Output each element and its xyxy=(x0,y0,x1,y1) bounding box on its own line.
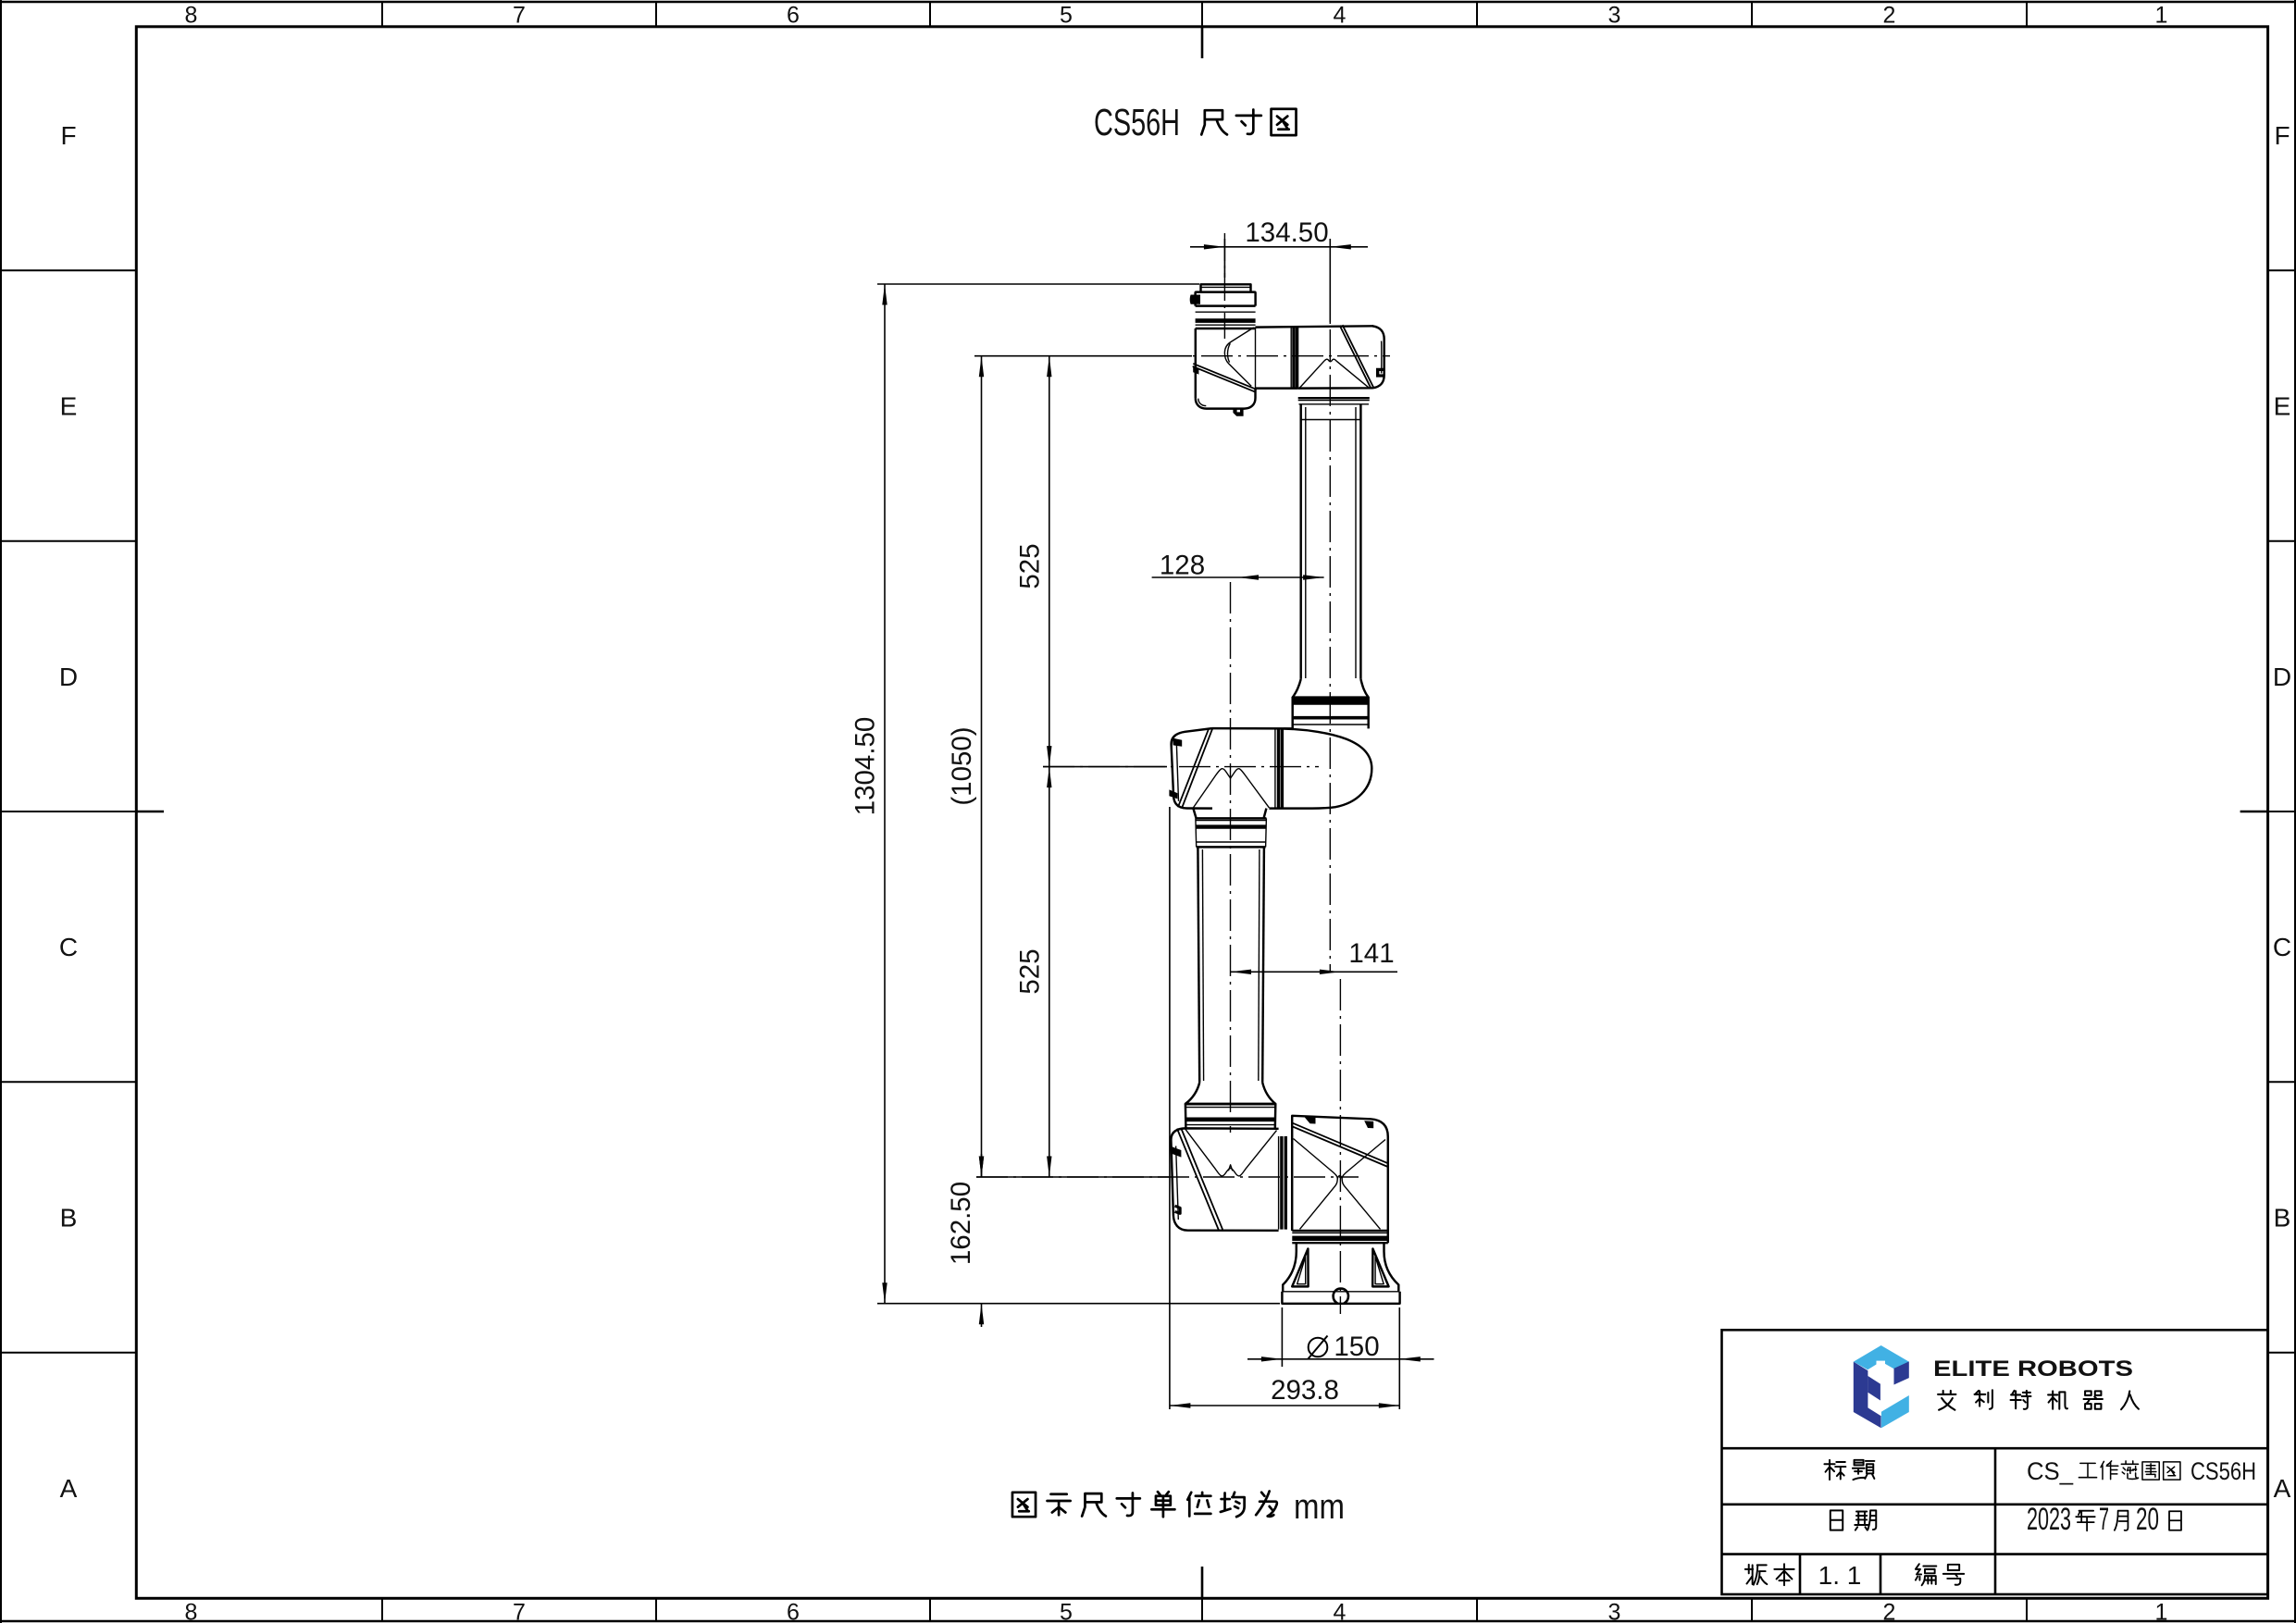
svg-text:5: 5 xyxy=(1060,3,1073,29)
svg-text:3: 3 xyxy=(1608,3,1621,29)
svg-text:128: 128 xyxy=(1160,551,1205,581)
svg-text:1304.50: 1304.50 xyxy=(850,717,881,816)
svg-text:150: 150 xyxy=(1334,1332,1379,1362)
svg-text:1: 1 xyxy=(2155,3,2168,29)
svg-text:D: D xyxy=(59,663,78,691)
svg-text:6: 6 xyxy=(787,1600,800,1623)
svg-text:20: 20 xyxy=(2136,1502,2159,1537)
svg-text:293.8: 293.8 xyxy=(1271,1375,1339,1406)
svg-text:162.50: 162.50 xyxy=(946,1182,976,1265)
svg-text:525: 525 xyxy=(1014,948,1045,994)
svg-text:ELITE ROBOTS: ELITE ROBOTS xyxy=(1933,1357,2133,1381)
svg-text:2: 2 xyxy=(1883,1600,1896,1623)
svg-text:8: 8 xyxy=(185,3,198,29)
svg-text:4: 4 xyxy=(1334,3,1347,29)
svg-text:C: C xyxy=(59,933,78,961)
svg-text:8: 8 xyxy=(185,1600,198,1623)
svg-text:E: E xyxy=(60,392,78,421)
svg-text:CS56H: CS56H xyxy=(1094,101,1180,143)
svg-text:141: 141 xyxy=(1348,938,1394,969)
svg-text:7: 7 xyxy=(513,3,526,29)
svg-text:C: C xyxy=(2273,933,2291,961)
svg-text:134.50: 134.50 xyxy=(1245,217,1328,248)
svg-text:525: 525 xyxy=(1014,543,1045,588)
svg-text:A: A xyxy=(60,1474,78,1503)
svg-text:2: 2 xyxy=(1883,3,1896,29)
svg-text:mm: mm xyxy=(1294,1488,1345,1527)
svg-text:1: 1 xyxy=(2155,1600,2168,1623)
svg-text:6: 6 xyxy=(787,3,800,29)
svg-text:2023: 2023 xyxy=(2027,1502,2071,1537)
svg-text:F: F xyxy=(2274,121,2290,150)
svg-text:1. 1: 1. 1 xyxy=(1818,1561,1862,1590)
svg-text:7: 7 xyxy=(513,1600,526,1623)
svg-text:B: B xyxy=(2274,1204,2291,1233)
svg-text:3: 3 xyxy=(1608,1600,1621,1623)
svg-text:(1050): (1050) xyxy=(947,726,977,805)
svg-text:F: F xyxy=(60,121,76,150)
svg-text:7: 7 xyxy=(2099,1502,2109,1537)
svg-text:CS56H: CS56H xyxy=(2191,1457,2256,1485)
svg-text:D: D xyxy=(2273,663,2291,691)
svg-text:E: E xyxy=(2274,392,2291,421)
svg-text:A: A xyxy=(2274,1474,2291,1503)
svg-text:CS_: CS_ xyxy=(2027,1457,2074,1485)
svg-text:5: 5 xyxy=(1060,1600,1073,1623)
svg-text:B: B xyxy=(60,1204,78,1233)
svg-text:4: 4 xyxy=(1334,1600,1347,1623)
